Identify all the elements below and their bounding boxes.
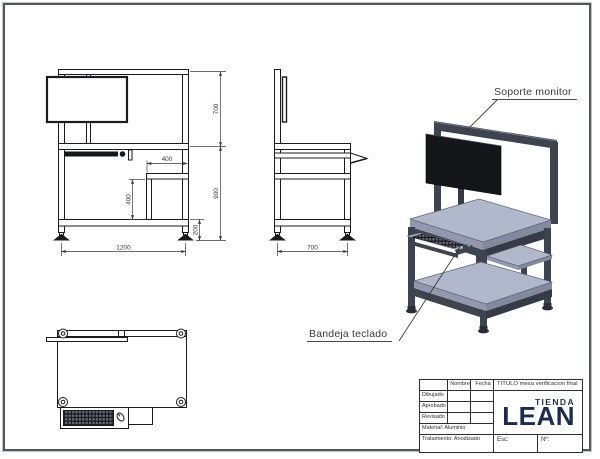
title-block-right: TITULO mesa verificacion final TIENDA LE… xyxy=(494,380,582,452)
dibujado-name-cell xyxy=(448,391,471,401)
top-monitor xyxy=(47,338,128,342)
title-block-form: Nombre Fecha Dibujado Aprobado Revisado … xyxy=(420,380,494,452)
front-shelf-support xyxy=(147,179,152,220)
name-header: Nombre xyxy=(448,380,471,390)
dim-700-height: 700 xyxy=(213,103,220,114)
revisado-date-cell xyxy=(471,413,493,423)
iso-left-leg xyxy=(408,227,415,307)
front-right-foot xyxy=(177,234,194,241)
monitor-leader-line xyxy=(464,100,497,133)
dim-400-shelf-width: 400 xyxy=(162,156,173,163)
row-label-dibujado: Dibujado xyxy=(420,391,448,401)
side-dimensions: 700 xyxy=(278,243,348,256)
top-keyboard xyxy=(64,411,114,426)
dim-1200-width: 1200 xyxy=(116,245,131,252)
top-support-bar xyxy=(58,331,187,337)
iso-right-post xyxy=(550,142,558,224)
row-label-revisado: Revisado xyxy=(420,413,448,423)
side-left-foot xyxy=(269,234,286,241)
top-tabletop xyxy=(58,337,187,408)
dim-900-height: 900 xyxy=(213,188,220,199)
title-block-header-row: Nombre Fecha xyxy=(420,380,493,391)
scale-cell: Esc: xyxy=(494,435,538,452)
aprobado-date-cell xyxy=(471,402,493,412)
front-left-foot xyxy=(53,234,70,241)
title-block: Nombre Fecha Dibujado Aprobado Revisado … xyxy=(419,379,583,453)
keyboard-tray-label: Bandeja teclado xyxy=(307,328,392,342)
row-aprobado: Aprobado xyxy=(420,402,493,413)
side-right-foot xyxy=(339,234,356,241)
drawing-title: TITULO mesa verificacion final xyxy=(494,380,582,391)
row-label-aprobado: Aprobado xyxy=(420,402,448,412)
front-mouse xyxy=(120,151,126,157)
top-tray-bracket xyxy=(129,408,153,425)
front-bottom-shelf xyxy=(59,220,189,227)
scale-row: Esc: Nº: xyxy=(494,435,582,452)
revisado-name-cell xyxy=(448,413,471,423)
row-tratamiento: Tratamiento: Anodizado xyxy=(420,435,493,452)
monitor-support-label: Soporte monitor xyxy=(492,86,577,100)
number-cell: Nº: xyxy=(538,435,582,452)
front-right-post xyxy=(183,70,189,233)
top-view xyxy=(47,329,187,429)
front-mid-shelf xyxy=(147,174,189,180)
side-back-post xyxy=(275,70,281,233)
brand-lean: LEAN xyxy=(502,406,575,427)
dim-200-foot: 200 xyxy=(193,224,200,235)
brand-logo: TIENDA LEAN xyxy=(494,391,582,435)
front-tray-bracket xyxy=(129,150,133,160)
row-material: Material: Aluminio xyxy=(420,424,493,435)
front-view xyxy=(47,70,194,241)
side-tray-rail xyxy=(275,153,351,158)
row-dibujado: Dibujado xyxy=(420,391,493,402)
iso-view xyxy=(406,121,558,333)
side-tabletop xyxy=(275,144,351,150)
front-keyboard xyxy=(64,152,118,157)
material-cell: Material: Aluminio xyxy=(420,424,493,434)
dim-700-depth: 700 xyxy=(307,245,318,252)
aprobado-name-cell xyxy=(448,402,471,412)
side-mid-shelf xyxy=(275,174,351,180)
side-monitor-edge xyxy=(283,77,287,122)
row-revisado: Revisado xyxy=(420,413,493,424)
header-empty-cell xyxy=(420,380,448,390)
side-bottom-shelf xyxy=(275,220,351,227)
front-tabletop xyxy=(59,144,189,150)
dibujado-date-cell xyxy=(471,391,493,401)
treatment-cell: Tratamiento: Anodizado xyxy=(420,435,493,452)
front-top-bar xyxy=(59,70,189,75)
side-view xyxy=(269,70,367,241)
front-monitor xyxy=(47,77,127,122)
date-header: Fecha xyxy=(471,380,493,390)
dim-400-shelf-height: 400 xyxy=(126,194,133,205)
